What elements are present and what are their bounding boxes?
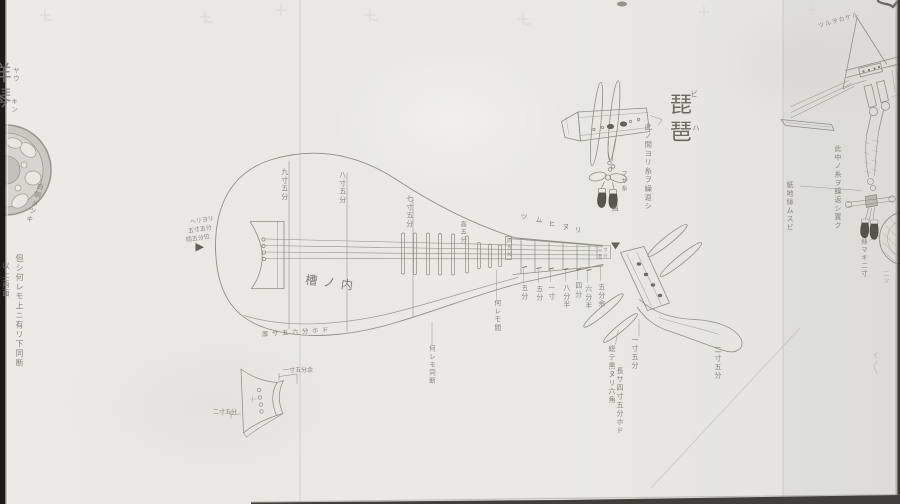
scroll-page: 琵琶 ビ ハ 洋琴 ヤウ キン 白銅メツキ 但シ何レモ上ニ有リ下同断 以上両面 …	[0, 0, 900, 504]
tassel-main-note: 此ノ間ヨリ糸ヲ繰返シ	[645, 123, 652, 211]
biwa-body	[215, 153, 603, 335]
fret-measure-6: 六分半	[584, 285, 591, 310]
paper-emboss-marks	[40, 4, 817, 25]
right-long-note: 此中ノ糸ヲ繰返シ置ク	[834, 145, 841, 230]
right-disc-note: 絲マキ二寸	[860, 238, 867, 278]
fret-top-label-3: ヒ	[548, 220, 555, 229]
head-note-right: 二寸五分	[714, 346, 721, 380]
fret-measure-7: 五分余	[597, 283, 604, 308]
head-note-col2: 長サ四寸五分ホド	[616, 367, 623, 435]
fret-measure-4: 八分半	[562, 284, 569, 309]
head-note-left: 一寸五分	[631, 336, 638, 370]
ink-smudge	[617, 2, 627, 7]
fret-top-label-2: ム	[535, 216, 542, 225]
fret-measure-1: 五分	[520, 284, 527, 301]
left-heading-kana-top: ヤウ	[12, 67, 19, 83]
width-label-3: 七寸五分	[405, 195, 412, 228]
mid-note: 何レモ間	[493, 299, 500, 332]
pegbox	[621, 247, 670, 311]
title-furigana-bottom: ハ	[692, 124, 700, 133]
tailpiece	[250, 222, 284, 289]
under-rim-note: 何レモ同断	[428, 345, 435, 385]
left-heading-kana-bottom: キン	[10, 98, 17, 114]
head-scroll	[637, 300, 742, 352]
boxed-note: 同五分	[505, 236, 512, 260]
bracket-detail-drawing	[231, 369, 297, 437]
right-disc-small-note: 二ツ	[882, 270, 888, 285]
title-furigana-top: ビ	[690, 90, 698, 99]
head-note-col1: 総テ黒ヌリ六角	[608, 345, 615, 405]
left-heading: 洋琴	[0, 62, 10, 112]
tassel-bottom-note: 紐	[611, 205, 618, 213]
tassel-small-note: フサ糸	[620, 170, 626, 193]
left-pointer-icon	[196, 243, 205, 252]
tassel-detail-drawing	[562, 80, 650, 208]
left-note-column-right: 但シ何レモ上ニ有リ下同断	[15, 254, 23, 368]
scroll-edges	[0, 0, 900, 504]
width-label-1: 九寸五分	[280, 168, 287, 201]
fret-measure-3: 一寸	[547, 284, 554, 301]
paper-creases	[300, 0, 800, 504]
nut-note: 一寸五分	[598, 247, 610, 258]
fret-top-label-5: リ	[574, 226, 581, 235]
biwa-drawing	[0, 0, 900, 504]
nut-marker-icon	[611, 243, 620, 250]
right-left-note: 紙地絲ムスビ	[786, 181, 793, 232]
neck-frets	[509, 239, 603, 275]
bracket-dim-right: 一寸五分余	[283, 368, 313, 375]
page-title: 琵琶	[667, 93, 689, 147]
fret-height-note: 高五分	[459, 221, 465, 244]
fret-measure-5: 四分	[574, 282, 581, 299]
width-label-2: 八寸五分	[338, 171, 345, 204]
fret-top-label-1: ツ	[520, 213, 527, 222]
fret-top-label-4: ヌ	[562, 223, 569, 232]
right-panel-tint	[783, 0, 900, 504]
fret-measure-2: 五分	[535, 285, 542, 302]
right-bottom-faint-note: く〳〵	[872, 352, 879, 376]
left-note-column-left: 以上両面	[2, 262, 10, 298]
bracket-dim-left: 二寸五分	[213, 410, 237, 417]
